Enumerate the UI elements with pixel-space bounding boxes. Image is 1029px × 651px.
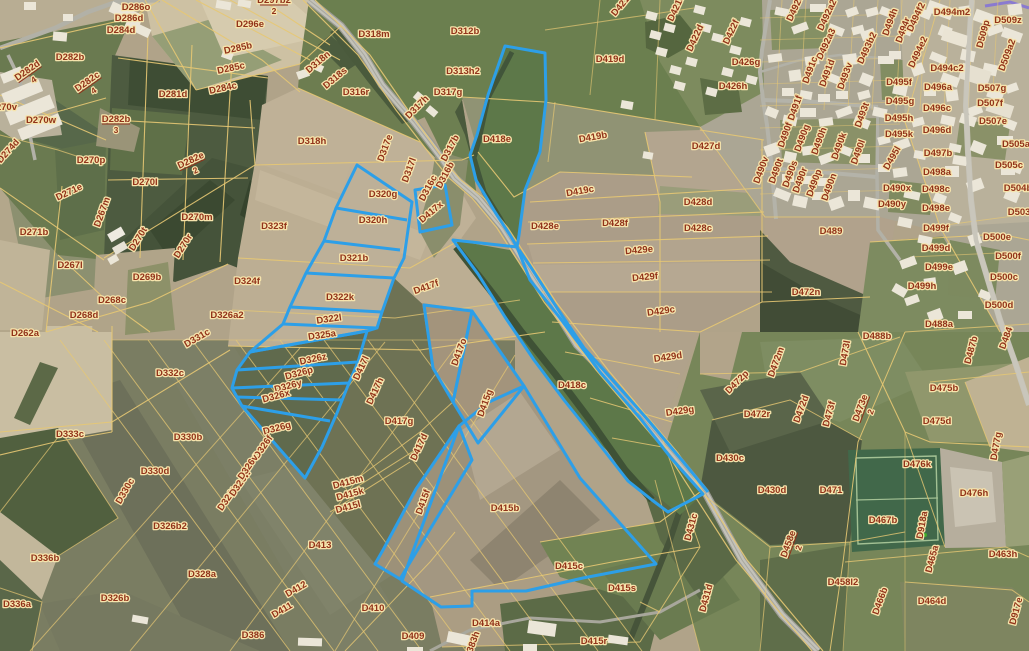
- svg-text:D500e: D500e: [983, 232, 1011, 243]
- svg-text:D286d: D286d: [115, 13, 144, 24]
- svg-text:D318h: D318h: [298, 136, 327, 147]
- svg-text:D326a2: D326a2: [210, 310, 243, 321]
- svg-text:D270m: D270m: [181, 212, 212, 223]
- svg-text:D476k: D476k: [903, 459, 932, 470]
- svg-text:D488b: D488b: [863, 331, 892, 342]
- svg-text:D430d: D430d: [758, 485, 787, 496]
- svg-text:D499h: D499h: [908, 281, 937, 292]
- svg-text:D430c: D430c: [716, 453, 744, 464]
- svg-text:D500f: D500f: [995, 251, 1022, 262]
- svg-text:D286o: D286o: [122, 2, 151, 13]
- svg-text:D269b: D269b: [133, 272, 162, 283]
- svg-text:D498c: D498c: [922, 184, 950, 195]
- svg-text:D496c: D496c: [923, 103, 951, 114]
- svg-text:D500c: D500c: [990, 272, 1018, 283]
- svg-text:D296e: D296e: [236, 19, 264, 30]
- svg-text:D427d: D427d: [692, 141, 721, 152]
- svg-text:D415c: D415c: [555, 561, 583, 572]
- svg-text:D413: D413: [309, 540, 332, 551]
- svg-text:D426g: D426g: [732, 57, 761, 68]
- svg-text:D428f: D428f: [602, 218, 629, 229]
- svg-text:D428e: D428e: [531, 221, 559, 232]
- svg-text:D415r: D415r: [581, 636, 608, 647]
- svg-text:D418c: D418c: [558, 380, 586, 391]
- svg-text:D472r: D472r: [744, 409, 771, 420]
- svg-text:D504b: D504b: [1004, 183, 1029, 194]
- svg-text:D496a: D496a: [924, 82, 953, 93]
- svg-text:D323f: D323f: [261, 221, 288, 232]
- svg-text:D475d: D475d: [923, 416, 952, 427]
- svg-text:D471: D471: [820, 485, 843, 496]
- svg-text:D488a: D488a: [925, 319, 954, 330]
- svg-text:D328a: D328a: [188, 569, 217, 580]
- svg-text:D429f: D429f: [632, 271, 660, 284]
- svg-text:D496d: D496d: [923, 125, 952, 136]
- svg-text:D318m: D318m: [358, 29, 389, 40]
- svg-text:D418e: D418e: [483, 134, 511, 145]
- svg-text:D312b: D312b: [451, 26, 480, 37]
- svg-text:D500d: D500d: [985, 300, 1014, 311]
- svg-text:D490x: D490x: [883, 183, 912, 194]
- svg-text:D270v: D270v: [0, 102, 18, 113]
- svg-text:D320h: D320h: [359, 215, 388, 226]
- svg-text:D463h: D463h: [989, 549, 1018, 560]
- svg-text:D489: D489: [820, 226, 843, 237]
- svg-text:D494c2: D494c2: [930, 63, 963, 74]
- svg-text:D410: D410: [362, 603, 385, 614]
- svg-text:D417g: D417g: [385, 416, 414, 427]
- svg-text:2: 2: [272, 6, 277, 16]
- svg-text:D409: D409: [402, 631, 425, 642]
- svg-text:D499e: D499e: [925, 262, 953, 273]
- svg-text:D270p: D270p: [77, 155, 106, 166]
- svg-text:D509z: D509z: [994, 15, 1022, 26]
- svg-text:D507g: D507g: [978, 83, 1007, 94]
- svg-text:D505c: D505c: [995, 160, 1023, 171]
- svg-text:D507e: D507e: [979, 116, 1007, 127]
- svg-text:D498a: D498a: [923, 167, 952, 178]
- svg-text:D270w: D270w: [26, 115, 57, 126]
- svg-text:D415s: D415s: [608, 583, 636, 594]
- svg-text:D476h: D476h: [960, 488, 989, 499]
- svg-text:D316r: D316r: [343, 87, 370, 98]
- svg-text:D498e: D498e: [922, 203, 950, 214]
- svg-text:D426h: D426h: [719, 81, 748, 92]
- svg-text:D419d: D419d: [596, 54, 625, 65]
- svg-text:3: 3: [114, 125, 119, 135]
- svg-text:D268d: D268d: [70, 310, 99, 321]
- svg-text:D336a: D336a: [3, 599, 32, 610]
- svg-text:D499f: D499f: [923, 223, 950, 234]
- svg-text:D271b: D271b: [20, 227, 49, 238]
- svg-text:D414a: D414a: [472, 618, 501, 629]
- svg-text:D282b: D282b: [56, 52, 85, 63]
- svg-text:D330b: D330b: [174, 432, 203, 443]
- svg-text:D497b: D497b: [924, 148, 953, 159]
- svg-text:D495k: D495k: [885, 129, 914, 140]
- svg-text:D336b: D336b: [31, 553, 60, 564]
- svg-text:D505a: D505a: [1002, 139, 1029, 150]
- svg-text:D322k: D322k: [326, 292, 355, 303]
- svg-text:D281d: D281d: [159, 89, 188, 100]
- svg-text:D494m2: D494m2: [934, 7, 970, 18]
- svg-text:D333c: D333c: [56, 429, 84, 440]
- svg-text:D320g: D320g: [369, 189, 398, 200]
- svg-text:D415b: D415b: [491, 503, 520, 514]
- svg-text:D317g: D317g: [434, 87, 463, 98]
- svg-text:D268c: D268c: [98, 295, 126, 306]
- svg-text:D490y: D490y: [878, 199, 907, 210]
- svg-text:D495f: D495f: [886, 77, 913, 88]
- svg-text:D428c: D428c: [684, 223, 712, 234]
- svg-text:D284d: D284d: [107, 25, 136, 36]
- svg-text:D495g: D495g: [886, 96, 915, 107]
- svg-text:D503g: D503g: [1008, 207, 1029, 218]
- svg-text:D313h2: D313h2: [446, 66, 480, 77]
- svg-text:D467b: D467b: [869, 515, 898, 526]
- svg-text:D332c: D332c: [156, 368, 184, 379]
- svg-text:D472n: D472n: [792, 287, 821, 298]
- svg-text:D324f: D324f: [234, 276, 261, 287]
- svg-text:D507f: D507f: [977, 98, 1004, 109]
- svg-text:D475b: D475b: [930, 383, 959, 394]
- svg-text:D326b: D326b: [101, 593, 130, 604]
- svg-text:D282b: D282b: [102, 114, 131, 125]
- svg-text:D262a: D262a: [11, 328, 40, 339]
- svg-text:D458l2: D458l2: [828, 577, 859, 588]
- svg-text:D464d: D464d: [918, 596, 947, 607]
- svg-text:D270l: D270l: [132, 177, 157, 188]
- svg-text:D495h: D495h: [885, 113, 914, 124]
- svg-text:D267l: D267l: [57, 260, 82, 271]
- svg-text:D321b: D321b: [340, 253, 369, 264]
- svg-text:D386: D386: [242, 630, 265, 641]
- svg-text:D428d: D428d: [684, 197, 713, 208]
- svg-text:D330d: D330d: [141, 466, 170, 477]
- svg-text:D499d: D499d: [922, 243, 951, 254]
- svg-text:D326b2: D326b2: [153, 521, 187, 532]
